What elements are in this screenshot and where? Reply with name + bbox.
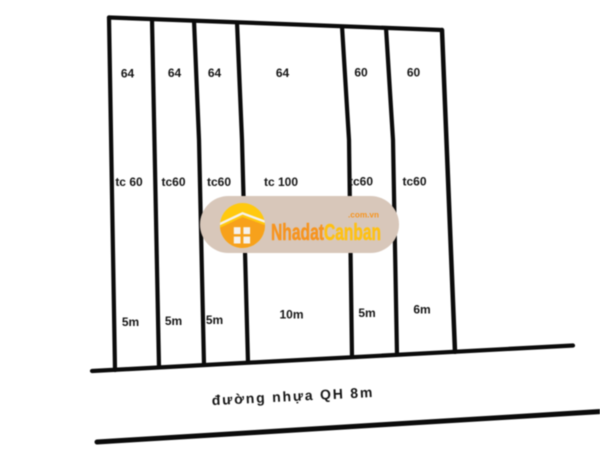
- svg-text:Nhadat: Nhadat: [271, 219, 324, 245]
- svg-text:10m: 10m: [279, 308, 303, 322]
- svg-text:5m: 5m: [165, 314, 182, 328]
- svg-text:5m: 5m: [122, 315, 139, 329]
- svg-text:64: 64: [168, 66, 182, 80]
- svg-text:tc 100: tc 100: [264, 175, 298, 189]
- svg-text:5m: 5m: [206, 313, 223, 327]
- svg-text:tc60: tc60: [161, 175, 185, 189]
- svg-text:Canban: Canban: [324, 219, 381, 245]
- svg-text:tc 60: tc 60: [115, 175, 143, 189]
- svg-text:.com.vn: .com.vn: [348, 211, 379, 220]
- svg-text:tc60: tc60: [349, 175, 373, 189]
- svg-text:60: 60: [354, 66, 368, 80]
- svg-text:6m: 6m: [413, 303, 430, 317]
- svg-text:tc60: tc60: [402, 175, 426, 189]
- svg-text:5m: 5m: [358, 306, 375, 320]
- svg-text:64: 64: [276, 66, 290, 80]
- svg-text:60: 60: [407, 66, 421, 80]
- svg-text:64: 64: [121, 67, 135, 81]
- svg-text:64: 64: [208, 66, 222, 80]
- svg-text:tc60: tc60: [207, 175, 231, 189]
